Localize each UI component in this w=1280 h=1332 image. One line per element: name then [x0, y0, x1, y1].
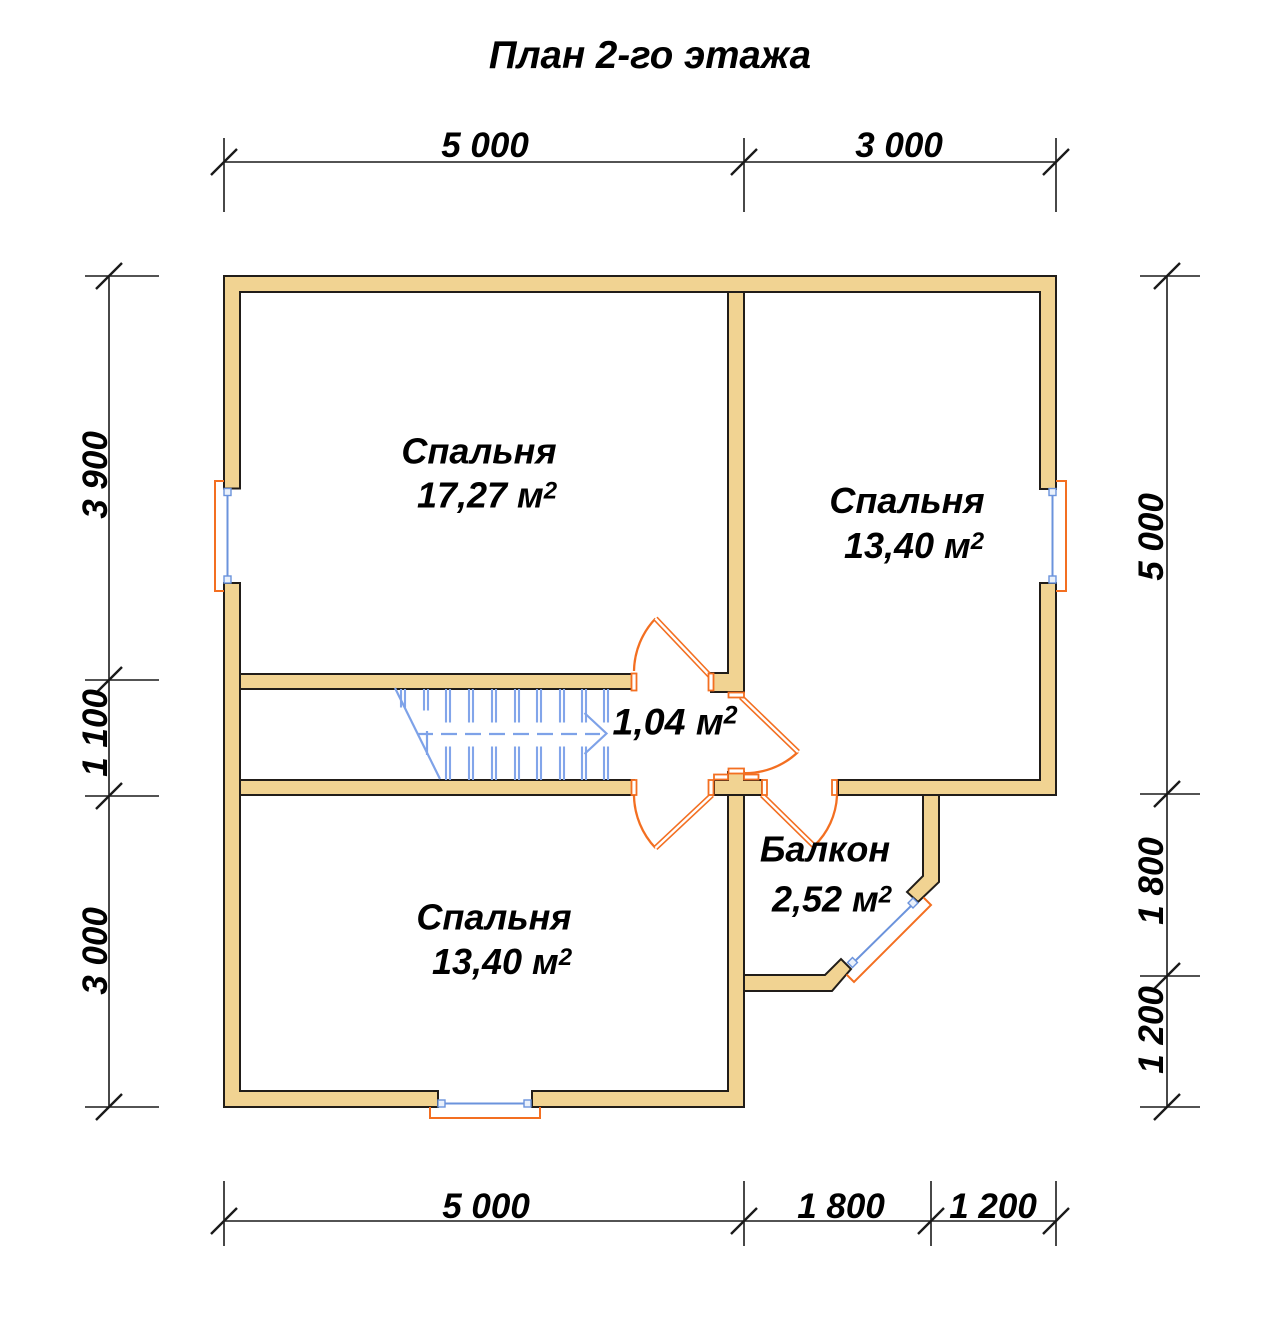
svg-text:13,40 м2: 13,40 м2: [844, 525, 985, 566]
svg-text:Спальня: Спальня: [829, 480, 984, 521]
svg-text:5 000: 5 000: [1132, 493, 1171, 581]
svg-text:Спальня: Спальня: [416, 897, 571, 938]
svg-text:3 000: 3 000: [76, 907, 115, 995]
svg-text:1,04 м2: 1,04 м2: [612, 701, 737, 743]
svg-text:Спальня: Спальня: [401, 431, 556, 472]
svg-text:5 000: 5 000: [442, 1187, 530, 1226]
svg-text:Балкон: Балкон: [760, 829, 891, 870]
svg-text:17,27 м2: 17,27 м2: [417, 475, 558, 516]
svg-text:5 000: 5 000: [441, 126, 529, 165]
svg-text:13,40 м2: 13,40 м2: [432, 941, 573, 982]
svg-text:1 100: 1 100: [76, 689, 115, 777]
svg-text:3 900: 3 900: [76, 431, 115, 519]
svg-text:3 000: 3 000: [855, 126, 943, 165]
svg-text:План 2-го этажа: План 2-го этажа: [489, 34, 811, 77]
svg-text:1 200: 1 200: [1132, 986, 1171, 1074]
svg-text:1 200: 1 200: [949, 1187, 1037, 1226]
svg-text:1 800: 1 800: [1132, 837, 1171, 925]
svg-text:1 800: 1 800: [797, 1187, 885, 1226]
svg-text:2,52 м2: 2,52 м2: [771, 879, 893, 920]
